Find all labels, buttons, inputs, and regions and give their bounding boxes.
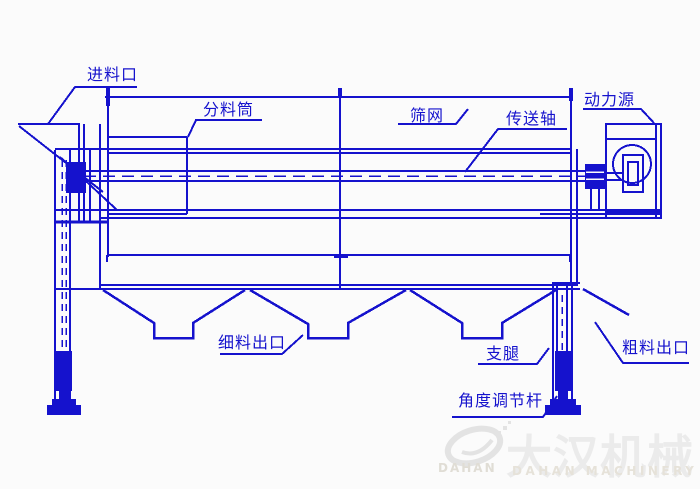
label-transmission-shaft: 传送轴 — [506, 110, 557, 127]
diagram-canvas: 进料口 分料筒 筛网 传送轴 动力源 细料出口 支腿 粗料出口 角度调节杆 大汉… — [0, 0, 700, 489]
shaft-coupling — [586, 165, 604, 188]
leader-distributor — [188, 120, 262, 137]
left-foot-plate — [48, 406, 80, 414]
label-angle-adjust-rod: 角度调节杆 — [458, 392, 543, 409]
fine-hopper-2 — [250, 290, 406, 338]
label-fine-material-outlet: 细料出口 — [218, 334, 286, 351]
label-coarse-material-outlet: 粗料出口 — [622, 339, 690, 356]
motor-pulley-circle — [613, 145, 651, 183]
label-feed-inlet: 进料口 — [87, 66, 138, 83]
frame-lines — [55, 88, 580, 289]
label-support-leg: 支腿 — [486, 345, 520, 362]
left-screw-jack — [57, 352, 71, 390]
watermark-logo-text: DAHAN — [438, 461, 497, 475]
label-distributor-drum: 分料筒 — [203, 101, 254, 118]
watermark-name-en: DAHAN MACHINERY — [512, 464, 697, 478]
drive-shaft — [67, 163, 623, 210]
right-screw-jack — [556, 352, 570, 390]
leader-feed-inlet — [48, 87, 137, 124]
leader-power-source — [583, 109, 654, 123]
coarse-outlet-slant — [583, 289, 629, 315]
fine-hopper-3 — [410, 290, 556, 338]
label-power-source: 动力源 — [584, 91, 635, 108]
fine-hopper-1 — [103, 290, 245, 338]
right-support-leg — [546, 283, 580, 414]
leader-shaft — [465, 129, 567, 172]
label-screen-mesh: 筛网 — [410, 107, 444, 124]
right-foot-plate — [546, 406, 580, 414]
discharge-hoppers — [103, 289, 629, 338]
